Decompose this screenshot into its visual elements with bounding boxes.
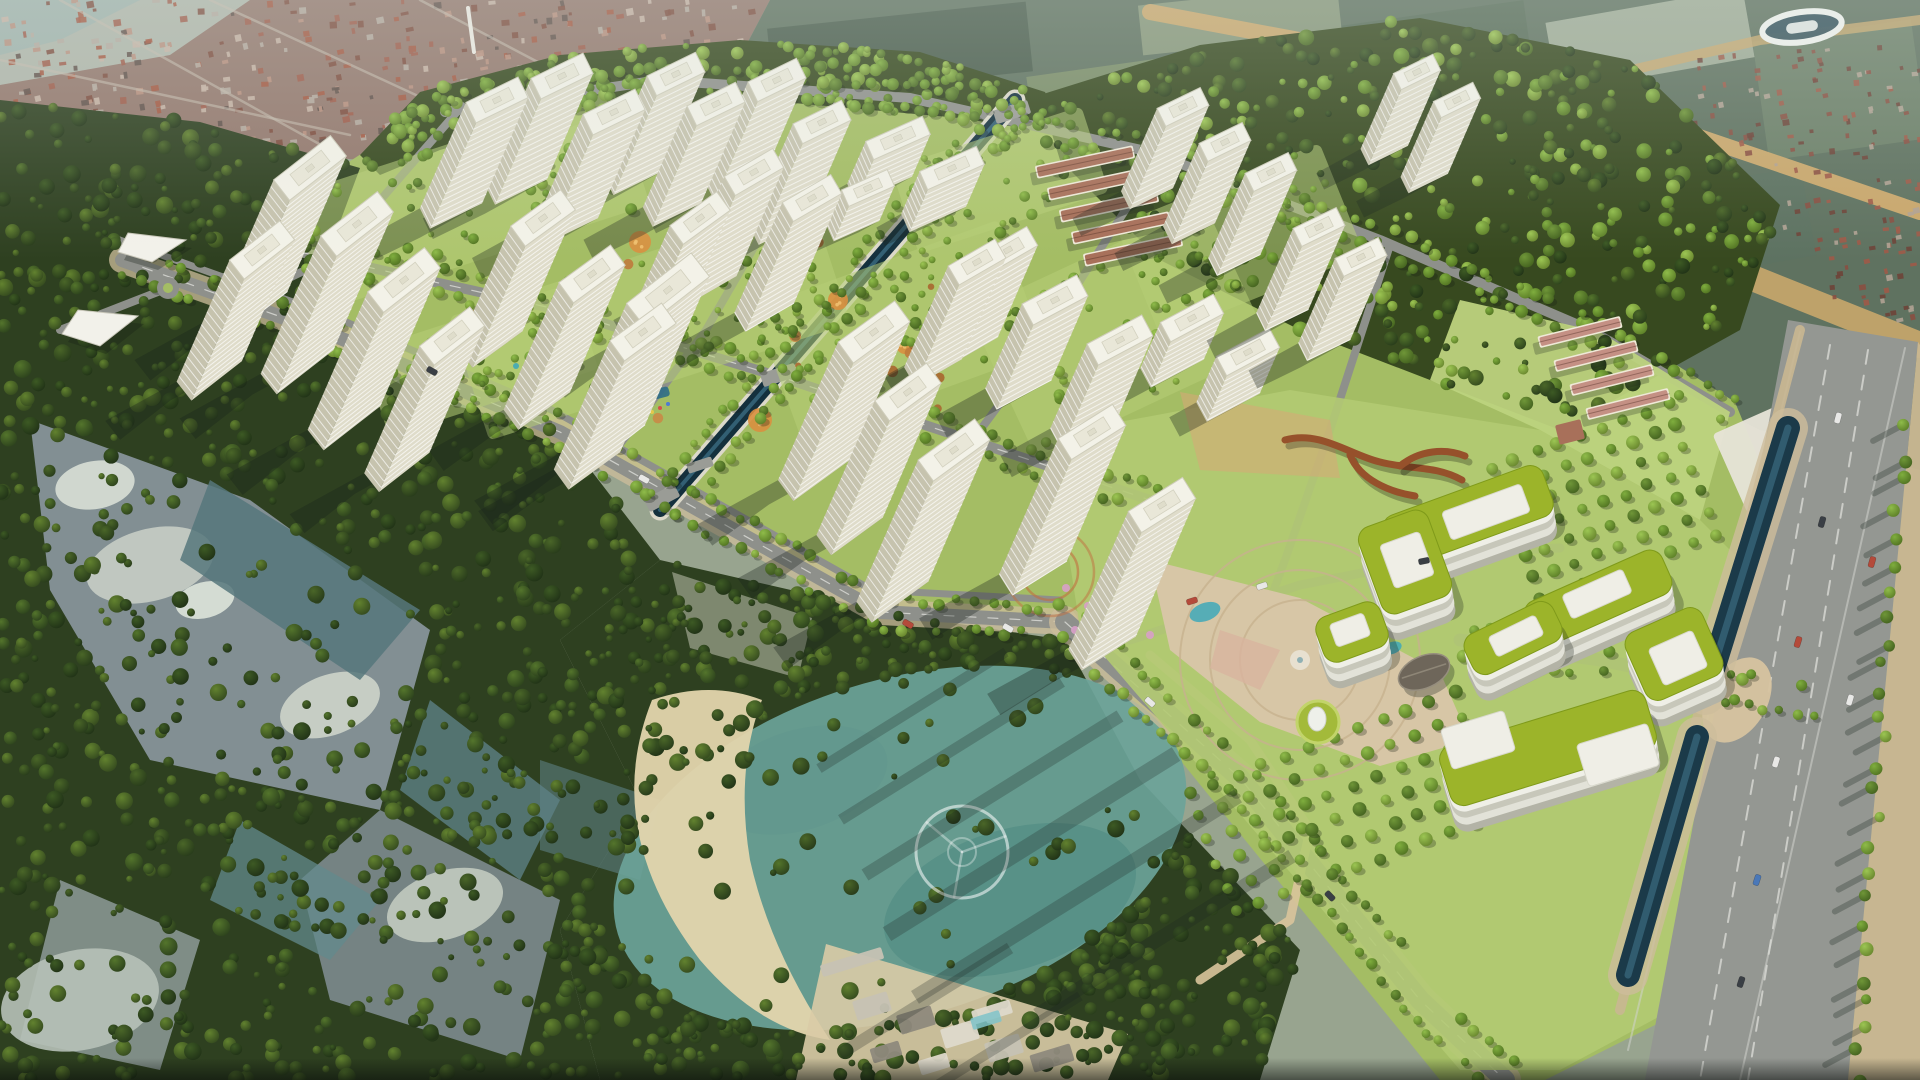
haze-overlay: [0, 0, 1920, 260]
vignette-overlay: [0, 1058, 1920, 1080]
screenshot-root: [0, 0, 1920, 1080]
aerial-masterplan-render: [0, 0, 1920, 1080]
